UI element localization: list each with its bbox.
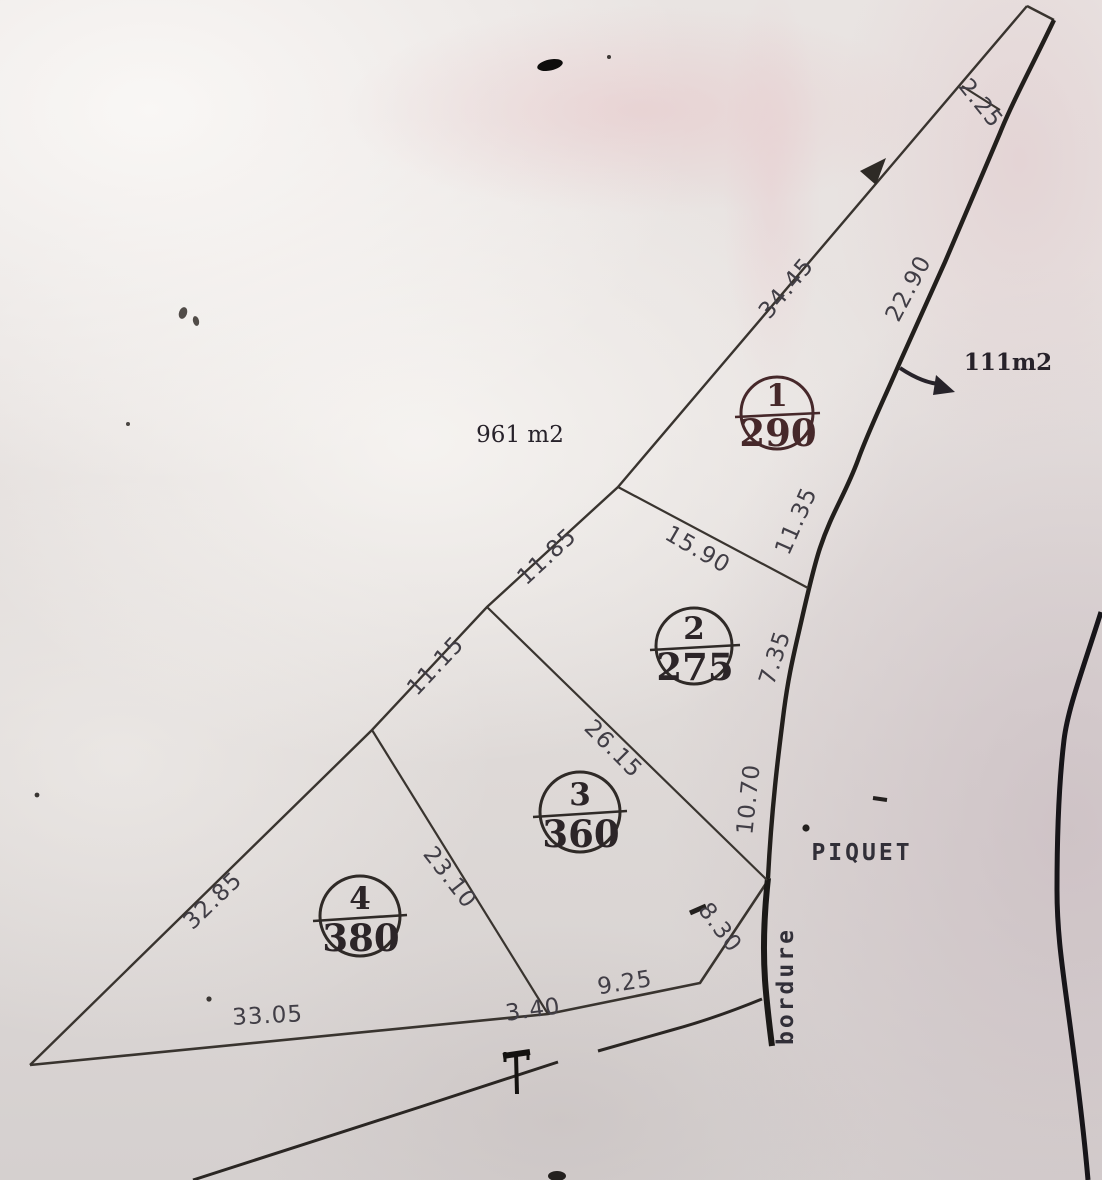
dimension-labels: 2.25 34.45 22.90 11.35 15.90 11.85 7.35 … [179, 74, 1008, 1031]
lot-number: 1 [766, 378, 788, 414]
dim-road-bottom: 10.70 [732, 763, 765, 836]
lot-marker-1: 1 290 [735, 377, 820, 455]
lot-area: 380 [322, 916, 399, 960]
lot-number: 4 [349, 881, 371, 917]
dim-left-bottom: 32.85 [179, 867, 248, 935]
direction-arrow-icon [860, 158, 886, 185]
road-curve-right [1057, 612, 1101, 1180]
total-area-label: 961 m2 [476, 422, 564, 448]
lot-number: 3 [569, 777, 591, 813]
survey-drawing: 2.25 34.45 22.90 11.35 15.90 11.85 7.35 … [0, 0, 1102, 1180]
lot-area: 360 [542, 812, 619, 856]
dim-road-top: 22.90 [881, 251, 937, 326]
lot-area: 275 [656, 645, 733, 689]
dim-left-lower-mid: 11.15 [402, 631, 469, 701]
lot-number: 2 [683, 611, 705, 647]
dim-left-top: 34.45 [754, 253, 819, 324]
scan-speck [206, 996, 211, 1001]
lot-area: 290 [739, 411, 816, 455]
piquet-label: PIQUET [811, 840, 912, 866]
dim-tip: 2.25 [953, 74, 1008, 133]
bordure-line [764, 878, 772, 1046]
bordure-label: bordure [773, 927, 799, 1045]
dim-bottom-small: 3.40 [504, 993, 562, 1026]
scanned-survey-plan: 2.25 34.45 22.90 11.35 15.90 11.85 7.35 … [0, 0, 1102, 1180]
parcel-tip-edge [1027, 6, 1054, 20]
dim-road-upper-mid: 11.35 [770, 483, 823, 558]
sliver-area-label: 111m2 [964, 349, 1052, 376]
tick-mark [873, 798, 887, 800]
piquet-point-icon [802, 824, 809, 831]
lot-marker-3: 3 360 [533, 772, 627, 856]
lot-marker-2: 2 275 [650, 608, 740, 689]
dim-bottom-left: 33.05 [232, 1001, 304, 1031]
dim-bottom-right: 8.30 [693, 898, 747, 958]
dim-left-upper-mid: 11.85 [512, 523, 582, 590]
lot-marker-4: 4 380 [313, 876, 407, 960]
sliver-arrow-head-icon [933, 375, 955, 395]
dim-lot34-divider: 23.10 [417, 842, 481, 914]
